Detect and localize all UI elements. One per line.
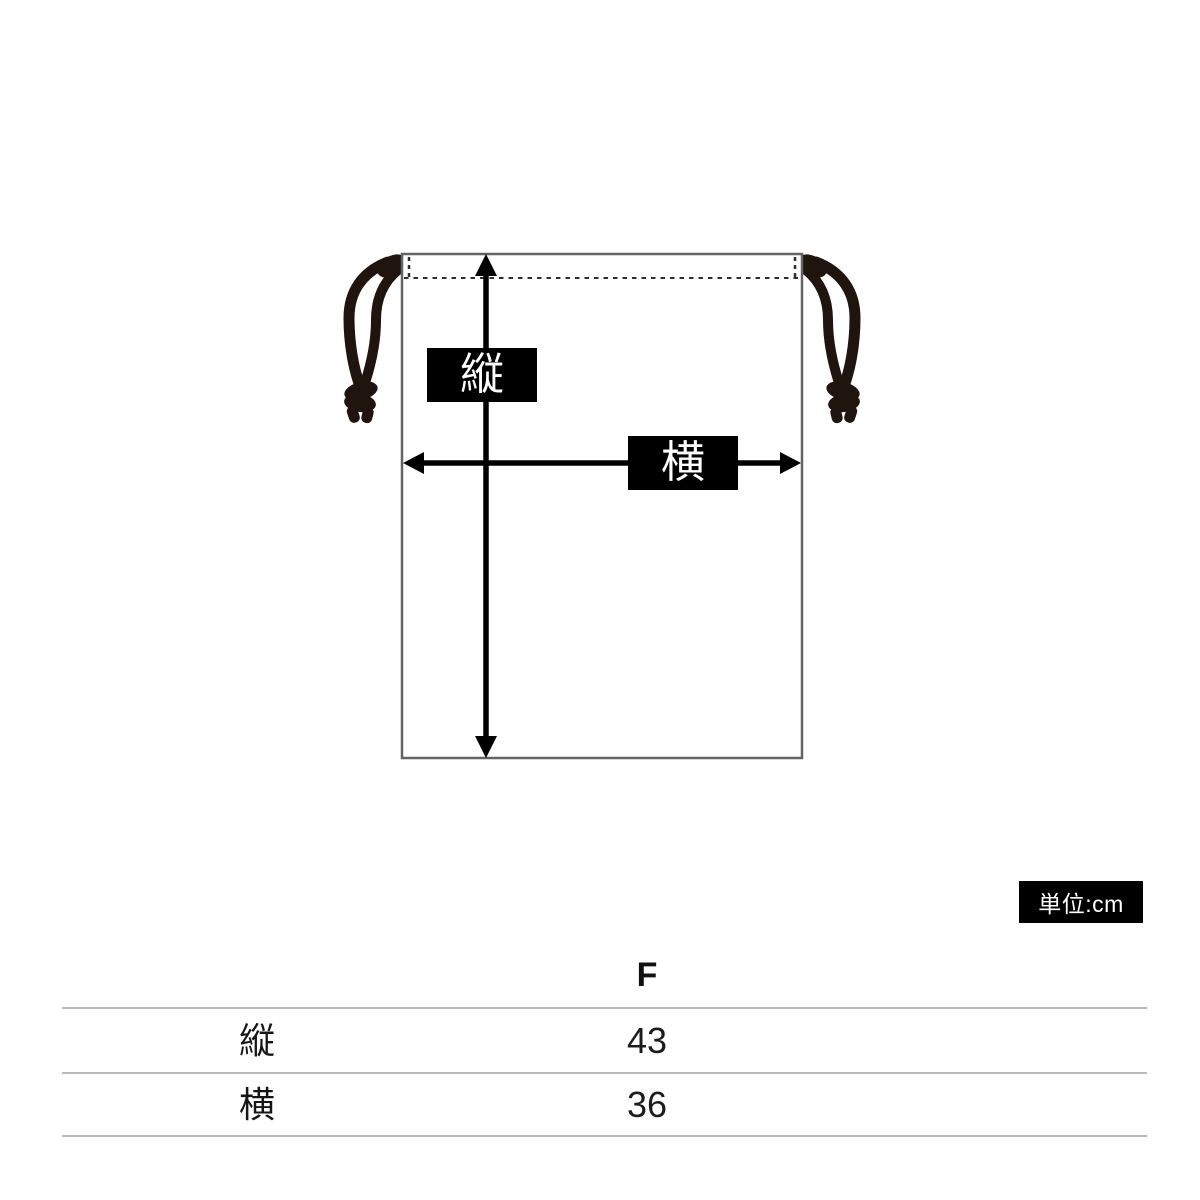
unit-badge: 単位:cm: [1019, 881, 1143, 923]
cord-knot-icon: [342, 378, 379, 424]
size-spec-page: 縦 横 単位:cm F 縦 43 横 36: [0, 0, 1200, 1200]
drawstring-right: [793, 250, 861, 425]
bag-outline: [402, 254, 802, 758]
row-value-width: 36: [452, 1087, 842, 1123]
row-value-height: 43: [452, 1023, 842, 1059]
height-dimension-label: 縦: [427, 348, 537, 402]
size-table: F 縦 43 横 36: [62, 943, 1147, 1137]
size-column-header: F: [452, 958, 842, 992]
table-row-width: 横 36: [62, 1072, 1147, 1137]
drawstring-left: [342, 250, 410, 425]
bag-diagram: [0, 0, 1200, 860]
row-label-height: 縦: [62, 1023, 452, 1059]
table-row-height: 縦 43: [62, 1007, 1147, 1072]
size-table-header-row: F: [62, 943, 1147, 1007]
width-dimension-label: 横: [628, 436, 738, 490]
row-label-width: 横: [62, 1087, 452, 1123]
